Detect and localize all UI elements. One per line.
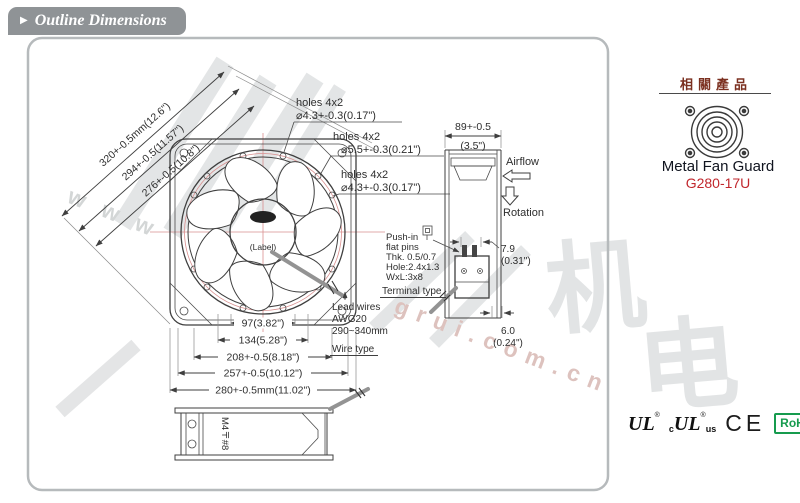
terminal-type-label: Terminal type — [382, 286, 442, 297]
terminal-pin — [462, 245, 467, 257]
brand-logo — [250, 211, 276, 223]
callout-label: ⌀4.3+-0.3(0.17") — [341, 182, 421, 194]
callout-label: ⌀4.3+-0.3(0.17") — [296, 110, 376, 122]
registered-icon: ® — [655, 412, 660, 419]
ce-mark: CE — [725, 412, 765, 435]
related-products-title: 相關產品 — [660, 74, 772, 93]
screw-hole — [188, 420, 196, 428]
dim-label: 208+-0.5(8.18") — [227, 352, 300, 364]
airflow-arrow-icon — [503, 170, 530, 182]
callout-label: holes 4x2 — [341, 169, 388, 181]
ul-logo: UL ® — [628, 414, 660, 434]
callout-label: ⌀5.5+-0.3(0.21") — [341, 144, 421, 156]
dim-label: (0.31") — [501, 256, 531, 267]
fan-guard-icon — [686, 107, 749, 158]
rotation-arrow-icon — [502, 187, 518, 205]
bottom-dimensions: 97(3.82") 134(5.28") 208+-0.5(8.18") 257… — [170, 314, 356, 397]
mounting-hole — [180, 307, 188, 315]
screw-note: M4〒#8 — [219, 417, 230, 450]
callout-label: holes 4x2 — [296, 97, 343, 109]
dim-label: 257+-0.5(10.12") — [224, 368, 303, 380]
certifications: UL ® c UL ® us CE RoHS — [628, 412, 798, 435]
watermark-char: 机 — [541, 228, 650, 348]
related-product-model: G280-17U — [640, 175, 796, 191]
watermark-char: 电 — [634, 306, 743, 426]
dim-label: 6.0 — [501, 326, 515, 337]
wire-note-line: Lead wires — [332, 302, 380, 313]
watermark-stroke — [60, 345, 136, 412]
terminal-pin — [472, 245, 477, 257]
registered-icon: ® — [701, 412, 706, 419]
section-header: ▶ Outline Dimensions — [8, 7, 186, 35]
cul-us-logo: c UL ® us — [669, 414, 716, 434]
dim-label: 89+-0.5 — [455, 121, 491, 133]
rotation-label: Rotation — [503, 207, 544, 219]
fan-bottom-view: M4〒#8 — [175, 388, 368, 460]
wire-note-line: AWG20 — [332, 314, 367, 325]
wire-note-line: 290~340mm — [332, 326, 388, 337]
wire-type-label: Wire type — [332, 344, 375, 355]
dim-label: (0.24") — [493, 338, 523, 349]
terminal-note-line: WxL:3x8 — [386, 272, 423, 283]
related-products-rule — [659, 93, 771, 94]
dim-label: 134(5.28") — [239, 335, 288, 347]
related-product-name: Metal Fan Guard — [640, 158, 796, 175]
triangle-icon: ▶ — [20, 16, 28, 26]
page: 机 电 w w w grui.com.cn — [0, 0, 800, 503]
callout-label: holes 4x2 — [333, 131, 380, 143]
dim-label: (3.5") — [460, 140, 485, 152]
dim-label: 7.9 — [501, 244, 515, 255]
screw-hole — [188, 440, 196, 448]
pin-icon — [423, 226, 432, 235]
dim-label: 280+-0.5mm(11.02") — [215, 385, 310, 397]
airflow-label: Airflow — [506, 156, 539, 168]
page-title: Outline Dimensions — [35, 12, 167, 30]
rohs-badge: RoHS — [774, 413, 800, 433]
dim-label: 97(3.82") — [242, 318, 285, 330]
